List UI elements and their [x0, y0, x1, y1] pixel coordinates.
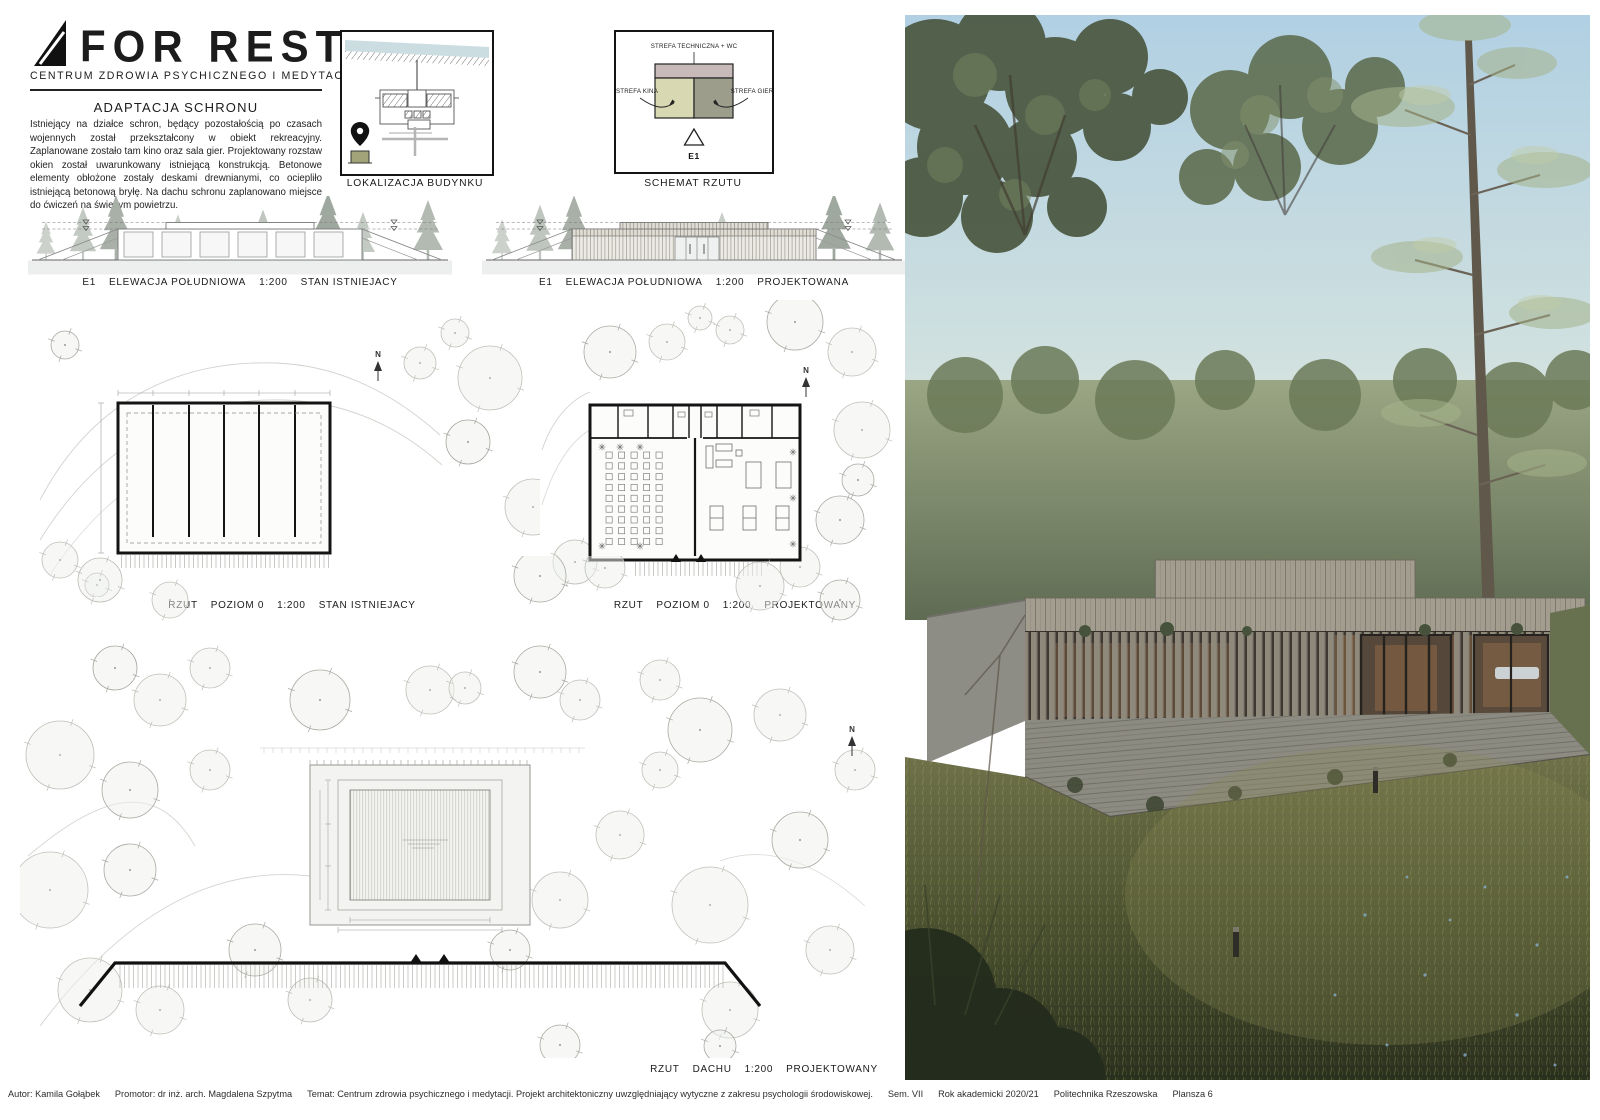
- caption-status: PROJEKTOWANY: [786, 1064, 878, 1075]
- caption-status: STAN ISTNIEJACY: [301, 277, 398, 288]
- footer-university: Politechnika Rzeszowska: [1054, 1089, 1158, 1099]
- caption-name: ELEWACJA POŁUDNIOWA: [109, 277, 246, 288]
- roof-fence-ticks: [310, 760, 527, 765]
- logo-text: FOR REST: [80, 25, 348, 69]
- survey-ticks: [264, 748, 579, 753]
- location-diagram-drawing: [342, 32, 492, 174]
- zone-cinema-label: STREFA KINA: [616, 88, 659, 95]
- zone-technical: [655, 64, 733, 78]
- elevation-proposed-drawing: [482, 196, 906, 276]
- footer-topic: Temat: Centrum zdrowia psychicznego i me…: [307, 1089, 873, 1099]
- caption-code: E1: [539, 277, 553, 288]
- caption-name: RZUT: [650, 1064, 679, 1075]
- footer-year: Rok akademicki 2020/21: [938, 1089, 1039, 1099]
- zone-cinema: [655, 78, 694, 118]
- footer-sheet: Plansza 6: [1172, 1089, 1212, 1099]
- location-diagram-caption: LOKALIZACJA BUDYNKU: [330, 178, 500, 189]
- zone-technical-label: STREFA TECHNICZNA + WC: [651, 43, 738, 50]
- caption-elevation-existing: E1 ELEWACJA POŁUDNIOWA 1:200 STAN ISTNIE…: [28, 277, 452, 288]
- caption-code: E1: [82, 277, 96, 288]
- caption-level: DACHU: [693, 1064, 732, 1075]
- caption-name: ELEWACJA POŁUDNIOWA: [566, 277, 703, 288]
- render-visualization: [905, 15, 1590, 1080]
- e1-label: E1: [688, 151, 699, 161]
- footer-promotor: Promotor: dr inż. arch. Magdalena Szpytm…: [115, 1089, 292, 1099]
- glass-doors: [675, 237, 719, 260]
- logo: FOR REST: [30, 18, 348, 68]
- schema-diagram-drawing: STREFA TECHNICZNA + WC STREFA KINA STREF…: [616, 32, 772, 172]
- plan-existing-drawing: N: [35, 305, 540, 597]
- north-arrow: N: [374, 350, 382, 381]
- parapet-band: [1025, 598, 1585, 632]
- north-arrow: N: [802, 366, 810, 397]
- schema-diagram-box: STREFA TECHNICZNA + WC STREFA KINA STREF…: [614, 30, 774, 174]
- e1-view-marker: [685, 129, 704, 145]
- north-label: N: [803, 366, 809, 375]
- bollard-light: [1233, 927, 1239, 957]
- caption-scale: 1:200: [716, 277, 745, 288]
- presentation-board: FOR REST CENTRUM ZDROWIA PSYCHICZNEGO I …: [0, 0, 1600, 1120]
- glass-door-right: [1473, 634, 1549, 716]
- interior-table: [1495, 667, 1539, 679]
- plan-proposed-drawing: N: [540, 300, 920, 597]
- roof-exercise-deck: [350, 790, 490, 900]
- zone-games-label: STREFA GIER: [731, 88, 772, 95]
- footer-author: Autor: Kamila Gołąbek: [8, 1089, 100, 1099]
- intro-title: ADAPTACJA SCHRONU: [30, 100, 322, 115]
- caption-scale: 1:200: [259, 277, 288, 288]
- caption-elevation-proposed: E1 ELEWACJA POŁUDNIOWA 1:200 PROJEKTOWAN…: [482, 277, 906, 288]
- site-marker: [351, 151, 369, 163]
- schema-diagram-caption: SCHEMAT RZUTU: [608, 178, 778, 189]
- elevation-existing-drawing: [28, 196, 452, 276]
- tagline: CENTRUM ZDROWIA PSYCHICZNEGO I MEDYTACJI: [30, 70, 322, 91]
- site-building-footprint: [375, 90, 459, 129]
- location-diagram-box: [340, 30, 494, 176]
- logo-tree-icon: [30, 18, 70, 68]
- footer-semester: Sem. VII: [888, 1089, 923, 1099]
- glass-door-left: [1360, 634, 1452, 719]
- north-label: N: [849, 725, 855, 734]
- footer: Autor: Kamila Gołąbek Promotor: dr inż. …: [8, 1089, 888, 1099]
- caption-status: PROJEKTOWANA: [757, 277, 849, 288]
- roof-plan-drawing: N: [20, 556, 880, 1058]
- north-label: N: [375, 350, 381, 359]
- zone-games: [694, 78, 733, 118]
- caption-scale: 1:200: [745, 1064, 774, 1075]
- bollard-light: [1373, 767, 1378, 793]
- clerestory-band: [1155, 560, 1415, 600]
